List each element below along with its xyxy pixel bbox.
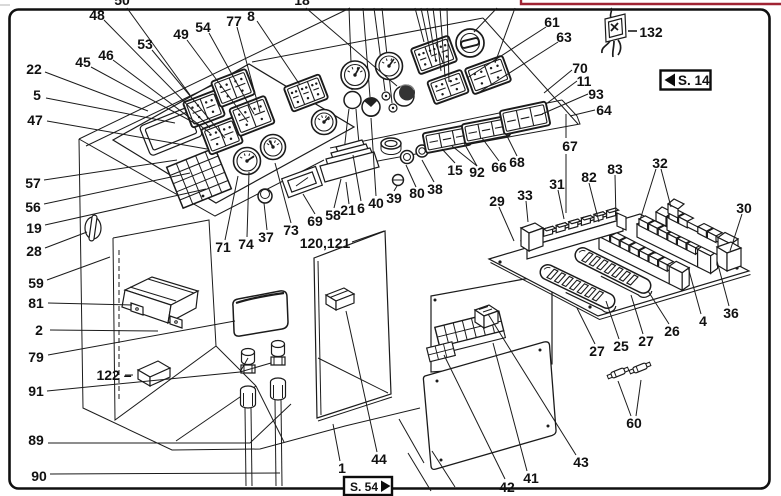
svg-text:132: 132	[639, 24, 663, 40]
svg-text:73: 73	[283, 222, 299, 238]
svg-text:93: 93	[588, 86, 604, 102]
svg-text:60: 60	[626, 415, 642, 431]
svg-text:47: 47	[27, 112, 43, 128]
svg-text:46: 46	[98, 47, 114, 63]
svg-text:42: 42	[499, 479, 515, 495]
svg-text:25: 25	[613, 338, 629, 354]
svg-text:43: 43	[573, 454, 589, 470]
svg-text:22: 22	[26, 61, 42, 77]
svg-text:122 –: 122 –	[96, 367, 131, 383]
svg-text:82: 82	[581, 169, 597, 185]
svg-text:49: 49	[173, 26, 189, 42]
svg-text:38: 38	[427, 181, 443, 197]
svg-text:41: 41	[523, 470, 539, 486]
svg-text:6: 6	[357, 200, 365, 216]
svg-text:89: 89	[28, 432, 44, 448]
svg-text:30: 30	[736, 200, 752, 216]
svg-text:29: 29	[489, 193, 505, 209]
svg-text:40: 40	[368, 195, 384, 211]
svg-text:45: 45	[75, 54, 91, 70]
svg-text:81: 81	[28, 295, 44, 311]
svg-text:66: 66	[491, 159, 507, 175]
svg-text:69: 69	[307, 213, 323, 229]
svg-text:79: 79	[28, 349, 44, 365]
svg-text:15: 15	[447, 162, 463, 178]
svg-text:28: 28	[26, 243, 42, 259]
svg-text:44: 44	[371, 451, 387, 467]
svg-text:8: 8	[247, 8, 255, 24]
svg-text:32: 32	[652, 155, 668, 171]
svg-text:53: 53	[137, 36, 153, 52]
svg-text:33: 33	[517, 187, 533, 203]
svg-text:S. 14: S. 14	[678, 73, 710, 88]
svg-text:92: 92	[469, 164, 485, 180]
svg-text:58: 58	[325, 207, 341, 223]
svg-text:2: 2	[35, 322, 43, 338]
svg-text:4: 4	[699, 313, 707, 329]
svg-text:59: 59	[28, 275, 44, 291]
svg-text:50: 50	[114, 0, 130, 8]
svg-text:27: 27	[589, 343, 605, 359]
svg-text:37: 37	[258, 229, 274, 245]
svg-text:71: 71	[215, 239, 231, 255]
svg-text:26: 26	[664, 323, 680, 339]
svg-text:S. 54: S. 54	[350, 480, 378, 494]
svg-text:21: 21	[340, 202, 356, 218]
svg-text:61: 61	[544, 14, 560, 30]
svg-text:67: 67	[562, 138, 578, 154]
svg-text:27: 27	[638, 333, 654, 349]
svg-text:63: 63	[556, 29, 572, 45]
svg-text:31: 31	[549, 176, 565, 192]
svg-text:36: 36	[723, 305, 739, 321]
svg-text:39: 39	[386, 190, 402, 206]
svg-text:91: 91	[28, 383, 44, 399]
svg-text:90: 90	[31, 468, 47, 484]
svg-text:57: 57	[25, 175, 41, 191]
svg-text:54: 54	[195, 19, 211, 35]
svg-text:83: 83	[607, 161, 623, 177]
svg-text:56: 56	[25, 199, 41, 215]
svg-text:74: 74	[238, 236, 254, 252]
svg-text:19: 19	[26, 220, 42, 236]
svg-text:64: 64	[596, 102, 612, 118]
svg-text:77: 77	[226, 13, 242, 29]
svg-text:18: 18	[294, 0, 310, 8]
svg-text:48: 48	[89, 7, 105, 23]
svg-text:80: 80	[409, 185, 425, 201]
svg-text:5: 5	[33, 87, 41, 103]
svg-text:1: 1	[338, 460, 346, 476]
svg-text:120,121: 120,121	[300, 235, 351, 251]
svg-text:68: 68	[509, 154, 525, 170]
